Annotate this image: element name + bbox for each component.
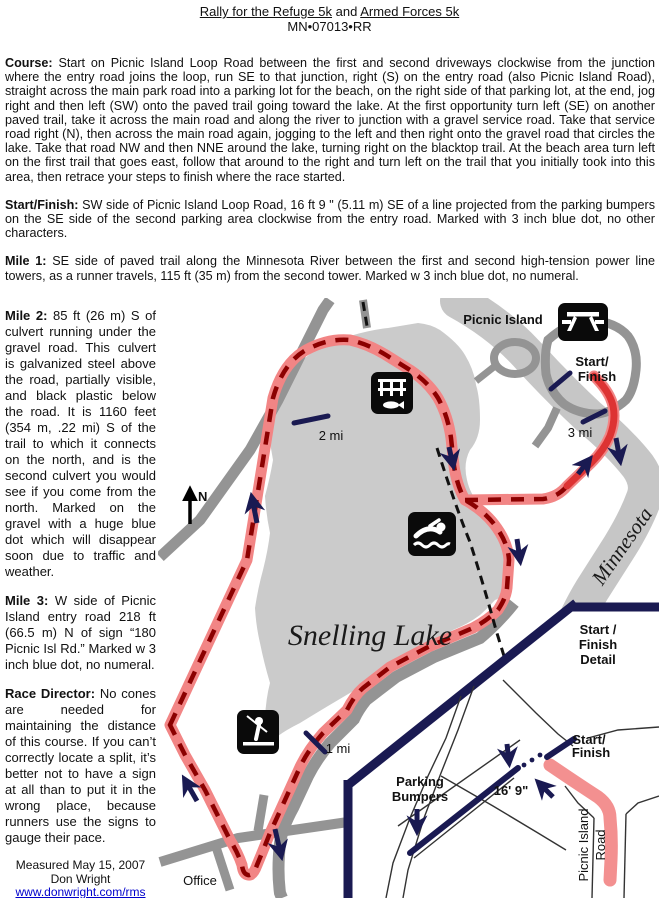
mile1-paragraph: Mile 1: SE side of paved trail along the… (5, 254, 655, 282)
projection-dot (530, 758, 535, 763)
detail-title-3: Detail (580, 652, 615, 667)
page-title: Rally for the Refuge 5k and Armed Forces… (0, 4, 659, 34)
mile3-label: 3 mi (568, 425, 593, 440)
fishing-pier-icon (371, 372, 413, 414)
parking-bumpers-label-2: Bumpers (392, 789, 448, 804)
mile1-label: Mile 1: (5, 254, 46, 268)
mile2-label: Mile 2: (5, 308, 47, 323)
measurer-footer: Measured May 15, 2007 Don Wright www.don… (5, 859, 156, 898)
mile3-label: Mile 3: (5, 593, 48, 608)
website-link[interactable]: www.donwright.com/rms (15, 885, 145, 898)
small-loop-stem (476, 366, 495, 381)
arrow-inset-road (507, 744, 509, 762)
mile2-paragraph: Mile 2: 85 ft (26 m) S of culvert runnin… (5, 308, 156, 580)
measured-date: Measured May 15, 2007 (5, 859, 156, 873)
fishing-icon (237, 710, 279, 754)
mile1-label: 1 mi (326, 741, 351, 756)
snelling-lake-label: Snelling Lake (288, 619, 452, 652)
office-road-stem (258, 795, 264, 831)
arrow-se-connector (517, 539, 520, 560)
body-paragraphs: Course: Start on Picnic Island Loop Road… (5, 56, 655, 297)
race-director-text: No cones are needed for maintaining the … (5, 686, 156, 845)
picnic-table-icon (558, 303, 608, 341)
parking-bumpers-label-1: Parking (396, 774, 444, 789)
distance-16ft9-label: 16' 9" (494, 783, 529, 798)
document-page: Rally for the Refuge 5k and Armed Forces… (0, 0, 659, 898)
mile3-paragraph: Mile 3: W side of Picnic Island entry ro… (5, 593, 156, 673)
picnic-island-label: Picnic Island (463, 312, 543, 327)
start-finish-paragraph: Start/Finish: SW side of Picnic Island L… (5, 198, 655, 241)
detail-title-2: Finish (579, 637, 617, 652)
race-director-label: Race Director: (5, 686, 95, 701)
certification-code: MN•07013•RR (0, 19, 659, 34)
course-text: Start on Picnic Island Loop Road between… (5, 56, 655, 184)
picnic-island-road-label-1: Picnic Island (576, 809, 591, 882)
start-finish-label: Start/Finish: (5, 198, 78, 212)
picnic-island-road-label-2: Road (593, 829, 608, 860)
measurer-name: Don Wright (5, 873, 156, 887)
swimming-icon (408, 512, 456, 556)
race-director-paragraph: Race Director: No cones are needed for m… (5, 686, 156, 846)
title-joiner: and (332, 4, 360, 19)
inset-start-finish-label-2: Finish (572, 745, 610, 760)
loop-road-stem (535, 408, 557, 446)
course-map: N (158, 298, 659, 898)
projection-dot (538, 753, 543, 758)
start-finish-text: SW side of Picnic Island Loop Road, 16 f… (5, 198, 655, 240)
projection-dot (522, 763, 527, 768)
course-label: Course: (5, 56, 53, 70)
detail-title-1: Start / (580, 622, 617, 637)
mile2-label: 2 mi (319, 428, 344, 443)
race1-title: Rally for the Refuge 5k (200, 4, 332, 19)
course-paragraph: Course: Start on Picnic Island Loop Road… (5, 56, 655, 184)
start-finish-label-1: Start/ (575, 354, 609, 369)
mile1-text: SE side of paved trail along the Minneso… (5, 254, 655, 282)
mile2-text: 85 ft (26 m) S of culvert running under … (5, 308, 156, 579)
office-driveway (216, 847, 230, 890)
north-label: N (198, 489, 207, 504)
office-label: Office (183, 873, 217, 888)
race2-title: Armed Forces 5k (360, 4, 459, 19)
title-line: Rally for the Refuge 5k and Armed Forces… (0, 4, 659, 19)
start-finish-label-2: Finish (578, 369, 616, 384)
left-column: Mile 2: 85 ft (26 m) S of culvert runnin… (5, 308, 156, 898)
